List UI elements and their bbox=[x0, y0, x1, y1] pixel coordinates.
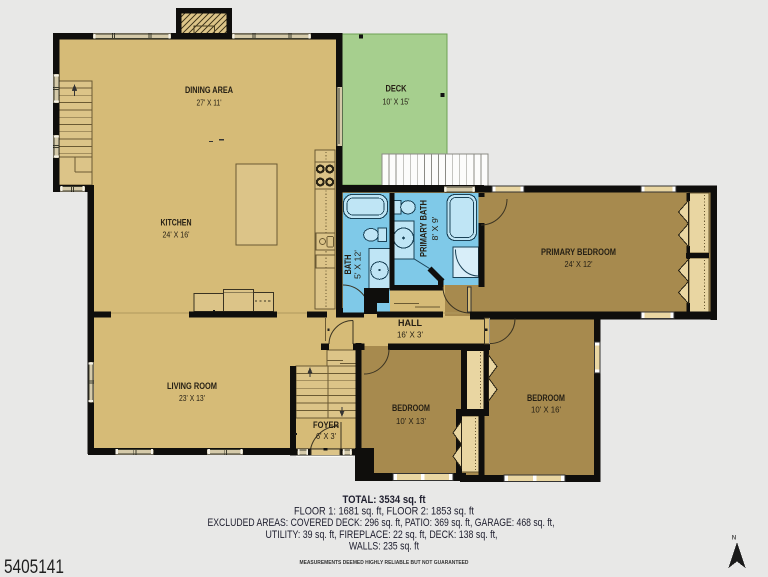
svg-text:PRIMARY BEDROOM: PRIMARY BEDROOM bbox=[541, 247, 616, 257]
svg-text:10' X 13': 10' X 13' bbox=[396, 416, 426, 426]
svg-text:FOYER: FOYER bbox=[313, 420, 339, 430]
svg-text:WALLS: 235 sq. ft: WALLS: 235 sq. ft bbox=[349, 541, 420, 553]
svg-text:27' X 11': 27' X 11' bbox=[197, 98, 222, 108]
svg-text:24' X 16': 24' X 16' bbox=[163, 230, 190, 240]
svg-text:8' X 9': 8' X 9' bbox=[430, 216, 440, 240]
svg-text:5405141: 5405141 bbox=[4, 555, 64, 577]
svg-text:PRIMARY BATH: PRIMARY BATH bbox=[419, 200, 429, 257]
svg-text:N: N bbox=[732, 535, 737, 542]
svg-text:10' X 15': 10' X 15' bbox=[383, 97, 410, 107]
svg-text:BEDROOM: BEDROOM bbox=[527, 393, 565, 403]
svg-text:DINING AREA: DINING AREA bbox=[185, 85, 233, 95]
svg-text:DECK: DECK bbox=[386, 84, 407, 94]
svg-text:KITCHEN: KITCHEN bbox=[161, 218, 192, 228]
svg-text:10' X 16': 10' X 16' bbox=[531, 405, 561, 415]
svg-text:UTILITY: 39 sq. ft, FIREPLACE:: UTILITY: 39 sq. ft, FIREPLACE: 22 sq. ft… bbox=[266, 529, 498, 541]
svg-text:BATH: BATH bbox=[343, 254, 353, 274]
svg-text:6' X 3': 6' X 3' bbox=[316, 431, 336, 441]
svg-text:5' X 12': 5' X 12' bbox=[353, 250, 363, 279]
svg-text:LIVING ROOM: LIVING ROOM bbox=[167, 381, 217, 391]
svg-text:MEASUREMENTS DEEMED HIGHLY REL: MEASUREMENTS DEEMED HIGHLY RELIABLE BUT … bbox=[300, 560, 469, 566]
svg-text:24' X 12': 24' X 12' bbox=[565, 259, 593, 269]
svg-text:FLOOR 1: 1681 sq. ft, FLOOR 2:: FLOOR 1: 1681 sq. ft, FLOOR 2: 1853 sq. … bbox=[294, 506, 475, 518]
svg-text:16' X 3': 16' X 3' bbox=[397, 330, 423, 340]
svg-text:TOTAL: 3534 sq. ft: TOTAL: 3534 sq. ft bbox=[343, 494, 426, 506]
svg-text:HALL: HALL bbox=[398, 318, 422, 328]
svg-text:EXCLUDED AREAS: COVERED DECK:: EXCLUDED AREAS: COVERED DECK: 296 sq. ft… bbox=[208, 517, 555, 529]
svg-text:BEDROOM: BEDROOM bbox=[392, 403, 430, 413]
svg-text:23' X 13': 23' X 13' bbox=[179, 393, 205, 403]
